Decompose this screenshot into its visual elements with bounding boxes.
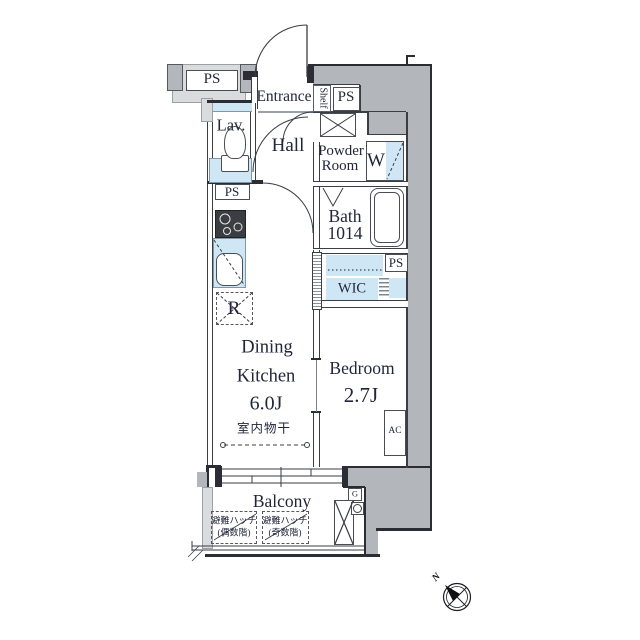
wall-bottomright-tail (365, 530, 378, 556)
wall-top-band (313, 66, 430, 85)
label-gas: G (352, 490, 358, 499)
wic-side-band (389, 278, 406, 298)
label-balcony: Balcony (253, 492, 311, 510)
label-north: N (431, 572, 444, 585)
outline-top (308, 64, 432, 67)
wall-powder-bath (313, 181, 408, 187)
label-ac: AC (388, 427, 401, 437)
wall-right-strip (408, 135, 430, 468)
bathtub-inner (374, 192, 400, 243)
label-hatch-odd-1: 避難ハッチ (262, 516, 307, 525)
label-ps-wic: PS (389, 256, 403, 270)
window-cap-right (342, 466, 348, 487)
outline-arm-top (342, 466, 432, 468)
label-hatch-even-1: 避難ハッチ (211, 516, 256, 525)
dk-door-arc (263, 183, 313, 233)
label-indoor-drying: 室内物干 (237, 422, 291, 435)
outline-right (430, 64, 433, 530)
wic-folding-door (312, 252, 322, 310)
label-hatch-odd-2: (奇数階) (269, 528, 302, 537)
wic-hanger-band (326, 255, 383, 276)
label-bedroom: Bedroom (329, 359, 394, 377)
label-refrigerator: R (228, 299, 241, 319)
line-interior-right (406, 112, 408, 468)
window-cap-left (215, 466, 222, 487)
label-kitchen: Kitchen (237, 367, 296, 386)
wic-dotted-strip (379, 278, 389, 298)
wall-entrance-right-seg (307, 66, 314, 83)
label-ps-top-right: PS (338, 90, 355, 106)
floor-plan: PS Entrance Shelf PS Lav. Hall Powder Ro… (0, 0, 640, 640)
label-ps-lav: PS (225, 185, 239, 199)
bathtub (370, 188, 404, 247)
balcony-bottom-line (205, 554, 380, 557)
label-hall: Hall (272, 136, 305, 156)
kitchen-sink (216, 253, 243, 286)
wall-topright-3 (368, 112, 430, 135)
washer-pan (386, 142, 403, 180)
entrance-step-line (258, 111, 313, 113)
label-ps-top-left: PS (204, 72, 221, 88)
line-r3-left (367, 112, 369, 135)
label-wic: WIC (338, 281, 366, 296)
label-dining: Dining (241, 338, 292, 357)
notch-h (406, 55, 415, 57)
label-powder-2: Room (322, 159, 359, 175)
label-shelf: Shelf (317, 87, 328, 108)
tick-door-top (311, 358, 321, 360)
label-entrance: Entrance (256, 89, 311, 105)
wall-bottomright-block (365, 468, 430, 530)
bath-folding-door (323, 188, 343, 206)
entrance-door-arc (255, 25, 307, 77)
label-bedroom-size: 2.7J (344, 384, 378, 406)
meter-box (351, 502, 364, 515)
sliding-door-gap (312, 360, 321, 412)
line-r3-bottom (368, 134, 408, 136)
corridor-post-left (167, 64, 183, 91)
tick-door-bottom (311, 411, 321, 413)
line-r2-bottom (368, 111, 406, 113)
label-lavatory: Lav. (217, 116, 246, 133)
outline-block-bottom (376, 528, 432, 531)
window-band (222, 467, 342, 487)
stove (215, 210, 246, 238)
lav-window-band (213, 103, 252, 112)
balcony-left-dark (197, 472, 207, 487)
wall-topright-2 (360, 85, 430, 112)
label-washer: W (367, 151, 385, 171)
label-hatch-even-2: (偶数階) (218, 528, 251, 537)
label-dining-size: 6.0J (250, 394, 283, 415)
vanity (320, 113, 356, 137)
outline-block-left (364, 487, 366, 556)
wall-bath-wic (313, 248, 408, 254)
label-bath-2: 1014 (328, 224, 363, 242)
wall-wic-bedroom (320, 300, 408, 308)
compass-icon (444, 584, 471, 611)
